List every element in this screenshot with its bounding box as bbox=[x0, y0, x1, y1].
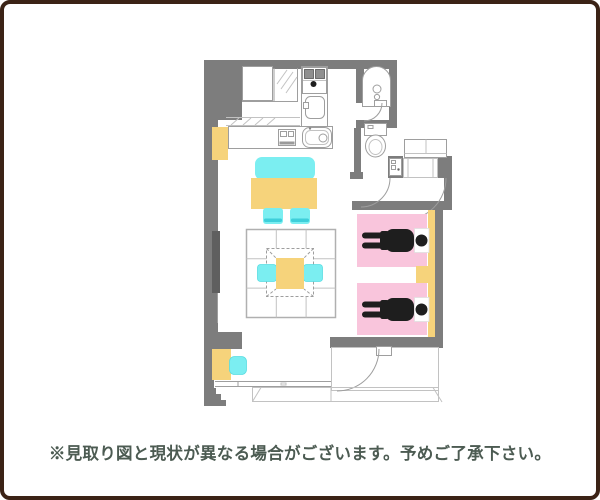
page: ※見取り図と現状が異なる場合がございます。予めご了承下さい。 bbox=[0, 0, 600, 500]
wall-hall-bottom bbox=[352, 201, 452, 210]
person-torso bbox=[385, 229, 414, 252]
wall-bottom-left-block bbox=[204, 332, 242, 349]
rail-hatch-2 bbox=[243, 118, 251, 125]
rail-hatch-3 bbox=[255, 118, 263, 125]
wall-step-2 bbox=[204, 394, 221, 401]
closet bbox=[243, 67, 273, 101]
washing-machine-dot bbox=[397, 168, 399, 170]
dining-table bbox=[251, 178, 317, 209]
grill-panel bbox=[280, 142, 295, 145]
bedroom bbox=[357, 210, 435, 337]
dining-chair-left-back bbox=[264, 219, 282, 223]
floor-cushion-right bbox=[304, 265, 323, 282]
toilet-icon bbox=[366, 135, 386, 157]
bath-faucet-small bbox=[374, 94, 379, 99]
desk-chair bbox=[230, 357, 247, 375]
wall-step-1 bbox=[204, 388, 216, 395]
desk bbox=[212, 349, 231, 380]
wall-top-left-pillar bbox=[204, 60, 242, 120]
stove-burner-left bbox=[305, 70, 314, 79]
stove-knob bbox=[311, 81, 317, 87]
rail-hatch-4 bbox=[267, 118, 275, 125]
wall-step-3 bbox=[204, 400, 226, 406]
tv-board bbox=[212, 231, 220, 293]
entrance-sill bbox=[404, 159, 438, 178]
balcony-edge-strip bbox=[253, 388, 439, 402]
balcony-chamfer-left bbox=[253, 388, 262, 402]
disclaimer-text: ※見取り図と現状が異なる場合がございます。予めご了承下さい。 bbox=[0, 440, 600, 464]
balcony-area bbox=[215, 347, 442, 403]
floor-plan bbox=[0, 0, 600, 500]
wall-entrance-outer bbox=[444, 156, 452, 208]
wall-toilet-stub bbox=[350, 172, 363, 179]
closet-hatch-2 bbox=[281, 72, 293, 89]
dining-chair-right-back bbox=[291, 219, 309, 223]
counter-sink-drain bbox=[319, 134, 327, 142]
floor-cushion-left bbox=[258, 265, 277, 282]
person-head bbox=[416, 235, 428, 247]
dining-bench bbox=[255, 157, 315, 180]
window-handle bbox=[281, 383, 286, 385]
wall-toilet-left bbox=[354, 128, 361, 178]
bath-shelf bbox=[375, 101, 387, 107]
stove-burner-right bbox=[316, 70, 325, 79]
cabinet bbox=[212, 127, 228, 160]
balcony-door-arc bbox=[337, 349, 379, 391]
kotatsu-table bbox=[276, 258, 304, 289]
nightstand bbox=[416, 266, 431, 283]
wall-right bbox=[435, 210, 443, 348]
bath-faucet-large bbox=[373, 85, 381, 93]
kitchen-sink-tap bbox=[304, 103, 309, 109]
counter-tap bbox=[309, 127, 311, 129]
balcony-chamfer-right bbox=[433, 388, 442, 403]
